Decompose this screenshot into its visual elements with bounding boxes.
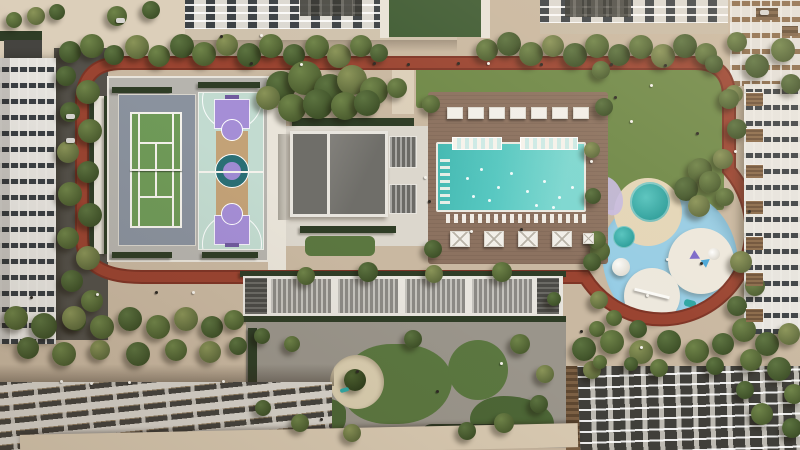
swimmer <box>510 172 513 175</box>
aerial-render <box>0 0 800 450</box>
person <box>436 390 439 393</box>
swimmer <box>497 186 500 189</box>
person <box>250 62 253 65</box>
person <box>487 62 490 65</box>
person <box>60 380 63 383</box>
person <box>700 262 703 265</box>
person <box>590 160 593 163</box>
people-layer <box>0 0 800 450</box>
swimmer <box>552 206 555 209</box>
person <box>540 63 543 66</box>
person <box>457 62 460 65</box>
person <box>500 362 503 365</box>
person <box>734 150 737 153</box>
person <box>260 34 263 37</box>
person <box>696 132 699 135</box>
person <box>646 294 649 297</box>
person <box>640 346 643 349</box>
person <box>666 258 669 261</box>
person <box>300 63 303 66</box>
person <box>580 330 583 333</box>
person <box>373 62 376 65</box>
swimmer <box>488 199 491 202</box>
person <box>320 418 323 421</box>
person <box>192 291 195 294</box>
person <box>356 370 359 373</box>
person <box>155 291 158 294</box>
person <box>96 293 99 296</box>
person <box>748 210 751 213</box>
person <box>30 296 33 299</box>
swimmer <box>480 168 483 171</box>
swimmer <box>535 204 538 207</box>
person <box>407 63 410 66</box>
swimmer <box>472 195 475 198</box>
swimmer <box>571 186 574 189</box>
person <box>128 381 131 384</box>
person <box>90 382 93 385</box>
person <box>610 63 613 66</box>
swimmer <box>466 177 469 180</box>
person <box>222 380 225 383</box>
person <box>220 35 223 38</box>
person <box>470 230 473 233</box>
person <box>424 176 427 179</box>
person <box>520 228 523 231</box>
person <box>630 120 633 123</box>
person <box>614 96 617 99</box>
person <box>664 64 667 67</box>
swimmer <box>558 196 561 199</box>
swimmer <box>526 190 529 193</box>
person <box>650 84 653 87</box>
swimmer <box>543 180 546 183</box>
person <box>428 200 431 203</box>
